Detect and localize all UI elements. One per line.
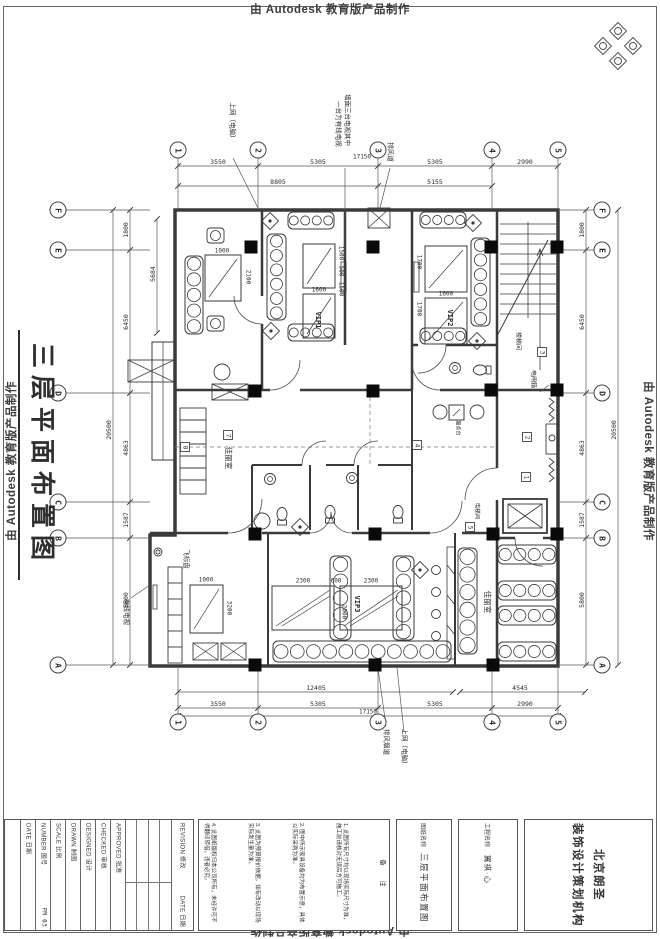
column (249, 659, 262, 672)
floor-plan: 1234512345FEDCBAFEDCBA123457835505305530… (0, 0, 660, 939)
dim-fur: 3200 (226, 601, 233, 616)
dim-fur: 500 (338, 266, 345, 277)
grid-row-F-left-label: F (54, 208, 63, 213)
column (249, 385, 262, 398)
grid-col-2-top-label: 2 (254, 148, 263, 153)
dim-left: 4863 (122, 440, 130, 456)
grid-row-F-right-label: F (598, 208, 607, 213)
label-dartboard: 飞标盘 (182, 549, 191, 569)
field-number: NUMBER 图号PM 03 (35, 820, 51, 930)
column (487, 528, 500, 541)
company-name-line1: 北京朗圣 (591, 822, 607, 928)
column (369, 659, 382, 672)
column (485, 241, 498, 254)
grid-row-B-right-label: B (598, 536, 607, 541)
corridor-centerlines (175, 390, 497, 465)
dim-top: 8805 (270, 178, 286, 186)
dim-fur: 2300 (296, 578, 311, 585)
label-breaker-box: 电闸箱 (529, 370, 537, 388)
dim-fur: 1600 (439, 291, 454, 298)
title-block-notes-box: 备 注 1. 此图所有尺寸均以现场实际尺寸为准，施工前请核对无误后方可施工。 2… (198, 819, 390, 931)
dim-top-total: 17150 (353, 154, 371, 161)
note-item: 2. 图中所示家具设备均为布置示意，具体以实际采购为准。 (290, 823, 304, 927)
dim-fur: 1000 (215, 248, 230, 255)
notes-header: 备 注 (378, 823, 386, 927)
column (367, 385, 380, 398)
grid-col-3-bottom-label: 3 (374, 720, 383, 725)
field-approved: APPROVED 批准 (110, 820, 126, 930)
north-symbol-icon (595, 23, 642, 70)
column (487, 659, 500, 672)
dim-fur: 1500 (338, 282, 345, 297)
field-designed: DESIGNED 设计 (80, 820, 96, 930)
dim-left: 6450 (122, 314, 130, 330)
dim-left-total: 20500 (105, 420, 113, 440)
note-item: 3. 此图为预算报价依据，如有改动以现场实际发生量为准。 (246, 823, 260, 927)
dim-right-total: 20500 (610, 420, 618, 440)
label-service-desk: 服务台 (455, 420, 462, 435)
dim-fur: 600 (331, 578, 342, 585)
company-name-line2: 装饰设计策划机构 (570, 822, 586, 928)
project-name-value: 翼祺·心 (483, 855, 494, 884)
column (369, 528, 382, 541)
dim-bottom: 4545 (512, 684, 528, 692)
field-revision: REVISION 修改DATE 日期 (171, 820, 194, 930)
dim-left: 1587 (122, 512, 130, 528)
room-elevator: 电梯间 (474, 503, 482, 520)
drawing-name-header: 图纸名称 (420, 823, 429, 847)
marker-5-label: 5 (467, 526, 474, 530)
dim-left: 1800 (122, 222, 130, 238)
note-item: 1. 此图所有尺寸均以现场实际尺寸为准，施工前请核对无误后方可施工。 (334, 823, 348, 927)
room-jiali-mid: 佳丽室 (224, 447, 234, 470)
title-block-drawing-name-box: 图纸名称 三层平面布置图 (396, 819, 452, 931)
drawing-sheet: 1234512345FEDCBAFEDCBA123457835505305530… (0, 0, 660, 939)
note-tv-wall-2: 一台为有线电视 (334, 101, 343, 147)
marker-8-label: 8 (182, 446, 189, 450)
title-block-company-box: 北京朗圣 装饰设计策划机构 (524, 819, 653, 931)
grid-col-4-top-label: 4 (488, 148, 497, 153)
grid-row-D-right-label: D (598, 391, 607, 396)
grid-col-4-bottom-label: 4 (488, 720, 497, 725)
dim-top: 2990 (517, 158, 533, 166)
dim-bottom: 2990 (517, 700, 533, 708)
dim-right: 4863 (578, 440, 586, 456)
sheet-title: 三层平面布置图 (18, 330, 62, 580)
dim-top: 5155 (427, 178, 443, 186)
column (245, 241, 258, 254)
marker-1-label: 1 (523, 476, 530, 480)
dim-top: 5305 (427, 158, 443, 166)
dim-fur: 1000 (199, 577, 214, 584)
grid-col-5-bottom-label: 5 (554, 720, 563, 725)
marker-7-label: 7 (225, 434, 232, 438)
dim-bottom: 12405 (306, 684, 326, 692)
project-name-header: 工程名称 (484, 823, 493, 847)
room-vip3: VIP3 (353, 596, 361, 613)
dim-bottom-total: 17150 (359, 709, 377, 716)
note-internet-bottom: 上网（电脑） (400, 729, 409, 768)
grid-col-1-top-label: 1 (174, 148, 183, 153)
field-drawn: DRAWN 制图 (65, 820, 81, 930)
dim-fur: 1700 (416, 302, 423, 317)
autodesk-watermark-left: 由 Autodesk 教育版产品制作 (3, 311, 19, 611)
note-exhaust-top: 排风道 (386, 142, 395, 162)
dim-fur: 1700 (416, 255, 423, 270)
dim-fur: 1500 (338, 246, 345, 261)
dim-right: 1800 (578, 222, 586, 238)
column (551, 384, 564, 397)
dim-right: 1587 (578, 512, 586, 528)
dim-fur: 2300 (364, 578, 379, 585)
dim-top: 5305 (310, 158, 326, 166)
grid-row-E-left-label: E (54, 248, 63, 253)
room-vip1: VIP1 (314, 312, 322, 329)
autodesk-watermark-right: 由 Autodesk 教育版产品制作 (641, 311, 657, 611)
title-block-project-box: 工程名称 翼祺·心 (458, 819, 518, 931)
room-vip2: VIP2 (446, 310, 454, 327)
dim-bottom: 5305 (427, 700, 443, 708)
grid-col-3-top-label: 3 (374, 148, 383, 153)
elevator (503, 499, 547, 533)
field-scale: SCALE 比例 (50, 820, 66, 930)
dim-bottom: 3550 (210, 700, 226, 708)
room-stair: 楼梯间 (514, 332, 522, 350)
dim-top: 3550 (210, 158, 226, 166)
dim-right: 6450 (578, 314, 586, 330)
note-item: 4. 此图纸版权归本公司所有，未经许可不得翻印转借，违者必究。 (202, 823, 216, 927)
grid-row-A-left-label: A (54, 663, 63, 668)
grid-col-5-top-label: 5 (554, 148, 563, 153)
field-checked: CHECKED 审核 (95, 820, 111, 930)
marker-3-label: 3 (539, 351, 546, 355)
dim-fur: 1600 (312, 287, 327, 294)
column (551, 241, 564, 254)
column (551, 528, 564, 541)
room-jiali-br: 佳丽室 (483, 591, 493, 614)
grid-row-C-right-label: C (598, 500, 607, 505)
grid-col-1-bottom-label: 1 (174, 720, 183, 725)
marker-2-label: 2 (524, 436, 531, 440)
dim-bottom: 5305 (310, 700, 326, 708)
note-exhaust-bottom: 排风烟道 (382, 729, 391, 756)
dim-fur: 2000 (341, 605, 348, 620)
grid-col-2-bottom-label: 2 (254, 720, 263, 725)
dim-fur: 2100 (245, 270, 252, 285)
grid-row-A-right-label: A (598, 663, 607, 668)
dim-inner: 5684 (149, 266, 157, 282)
note-tv-wall-1: 墙面三台电视其中 (343, 94, 352, 146)
note-cable-tv: 有线电视 (122, 599, 131, 626)
column (485, 384, 498, 397)
column (367, 241, 380, 254)
autodesk-watermark-top: 由 Autodesk 教育版产品制作 (0, 1, 660, 17)
drawing-name-value: 三层平面布置图 (418, 853, 430, 923)
column (249, 528, 262, 541)
dim-right: 5800 (578, 592, 586, 608)
marker-4-label: 4 (414, 444, 421, 448)
note-internet-top: 上网（电脑） (228, 103, 237, 142)
field-date: DATE 日期 (20, 820, 36, 930)
grid-row-E-right-label: E (598, 248, 607, 253)
